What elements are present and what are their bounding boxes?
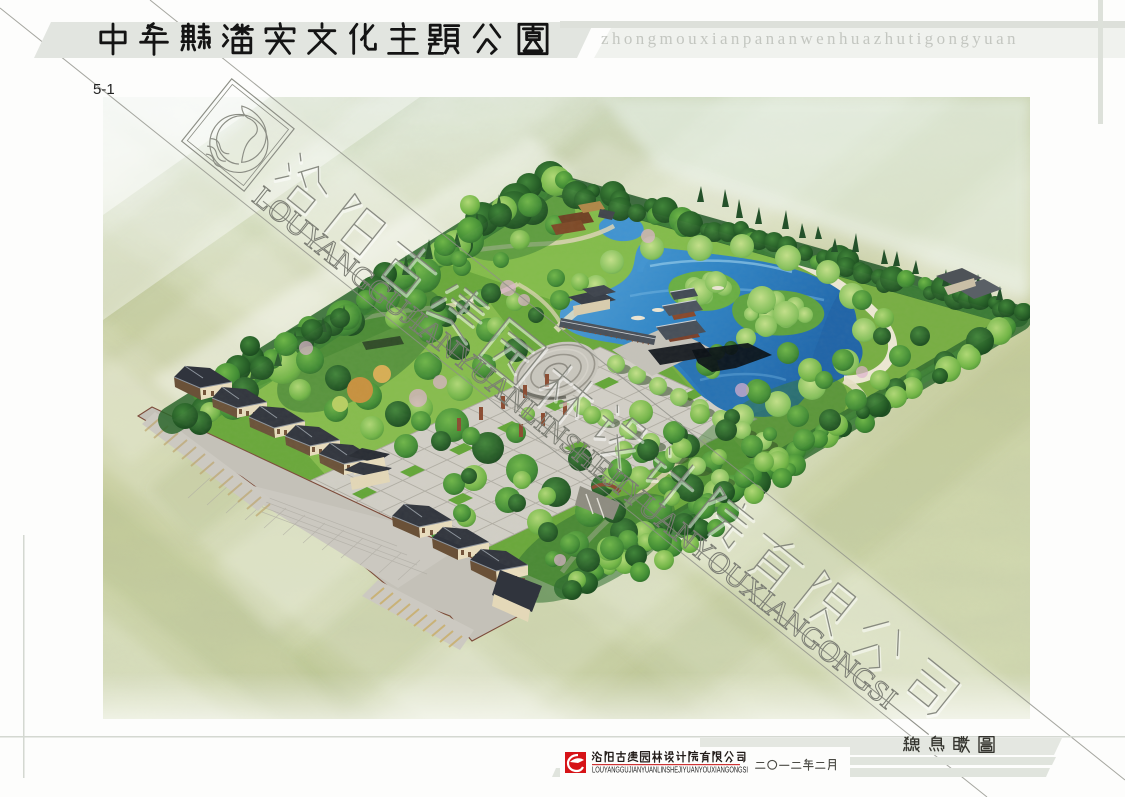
svg-text:zhongmouxianpananwenhuazhutigo: zhongmouxianpananwenhuazhutigongyuan: [601, 29, 1019, 48]
svg-text:LOUYANGGUJIANYUANLINSHEJIYUANY: LOUYANGGUJIANYUANLINSHEJIYUANYOUXIANGONG…: [592, 766, 748, 775]
svg-text:5-1: 5-1: [93, 81, 115, 98]
